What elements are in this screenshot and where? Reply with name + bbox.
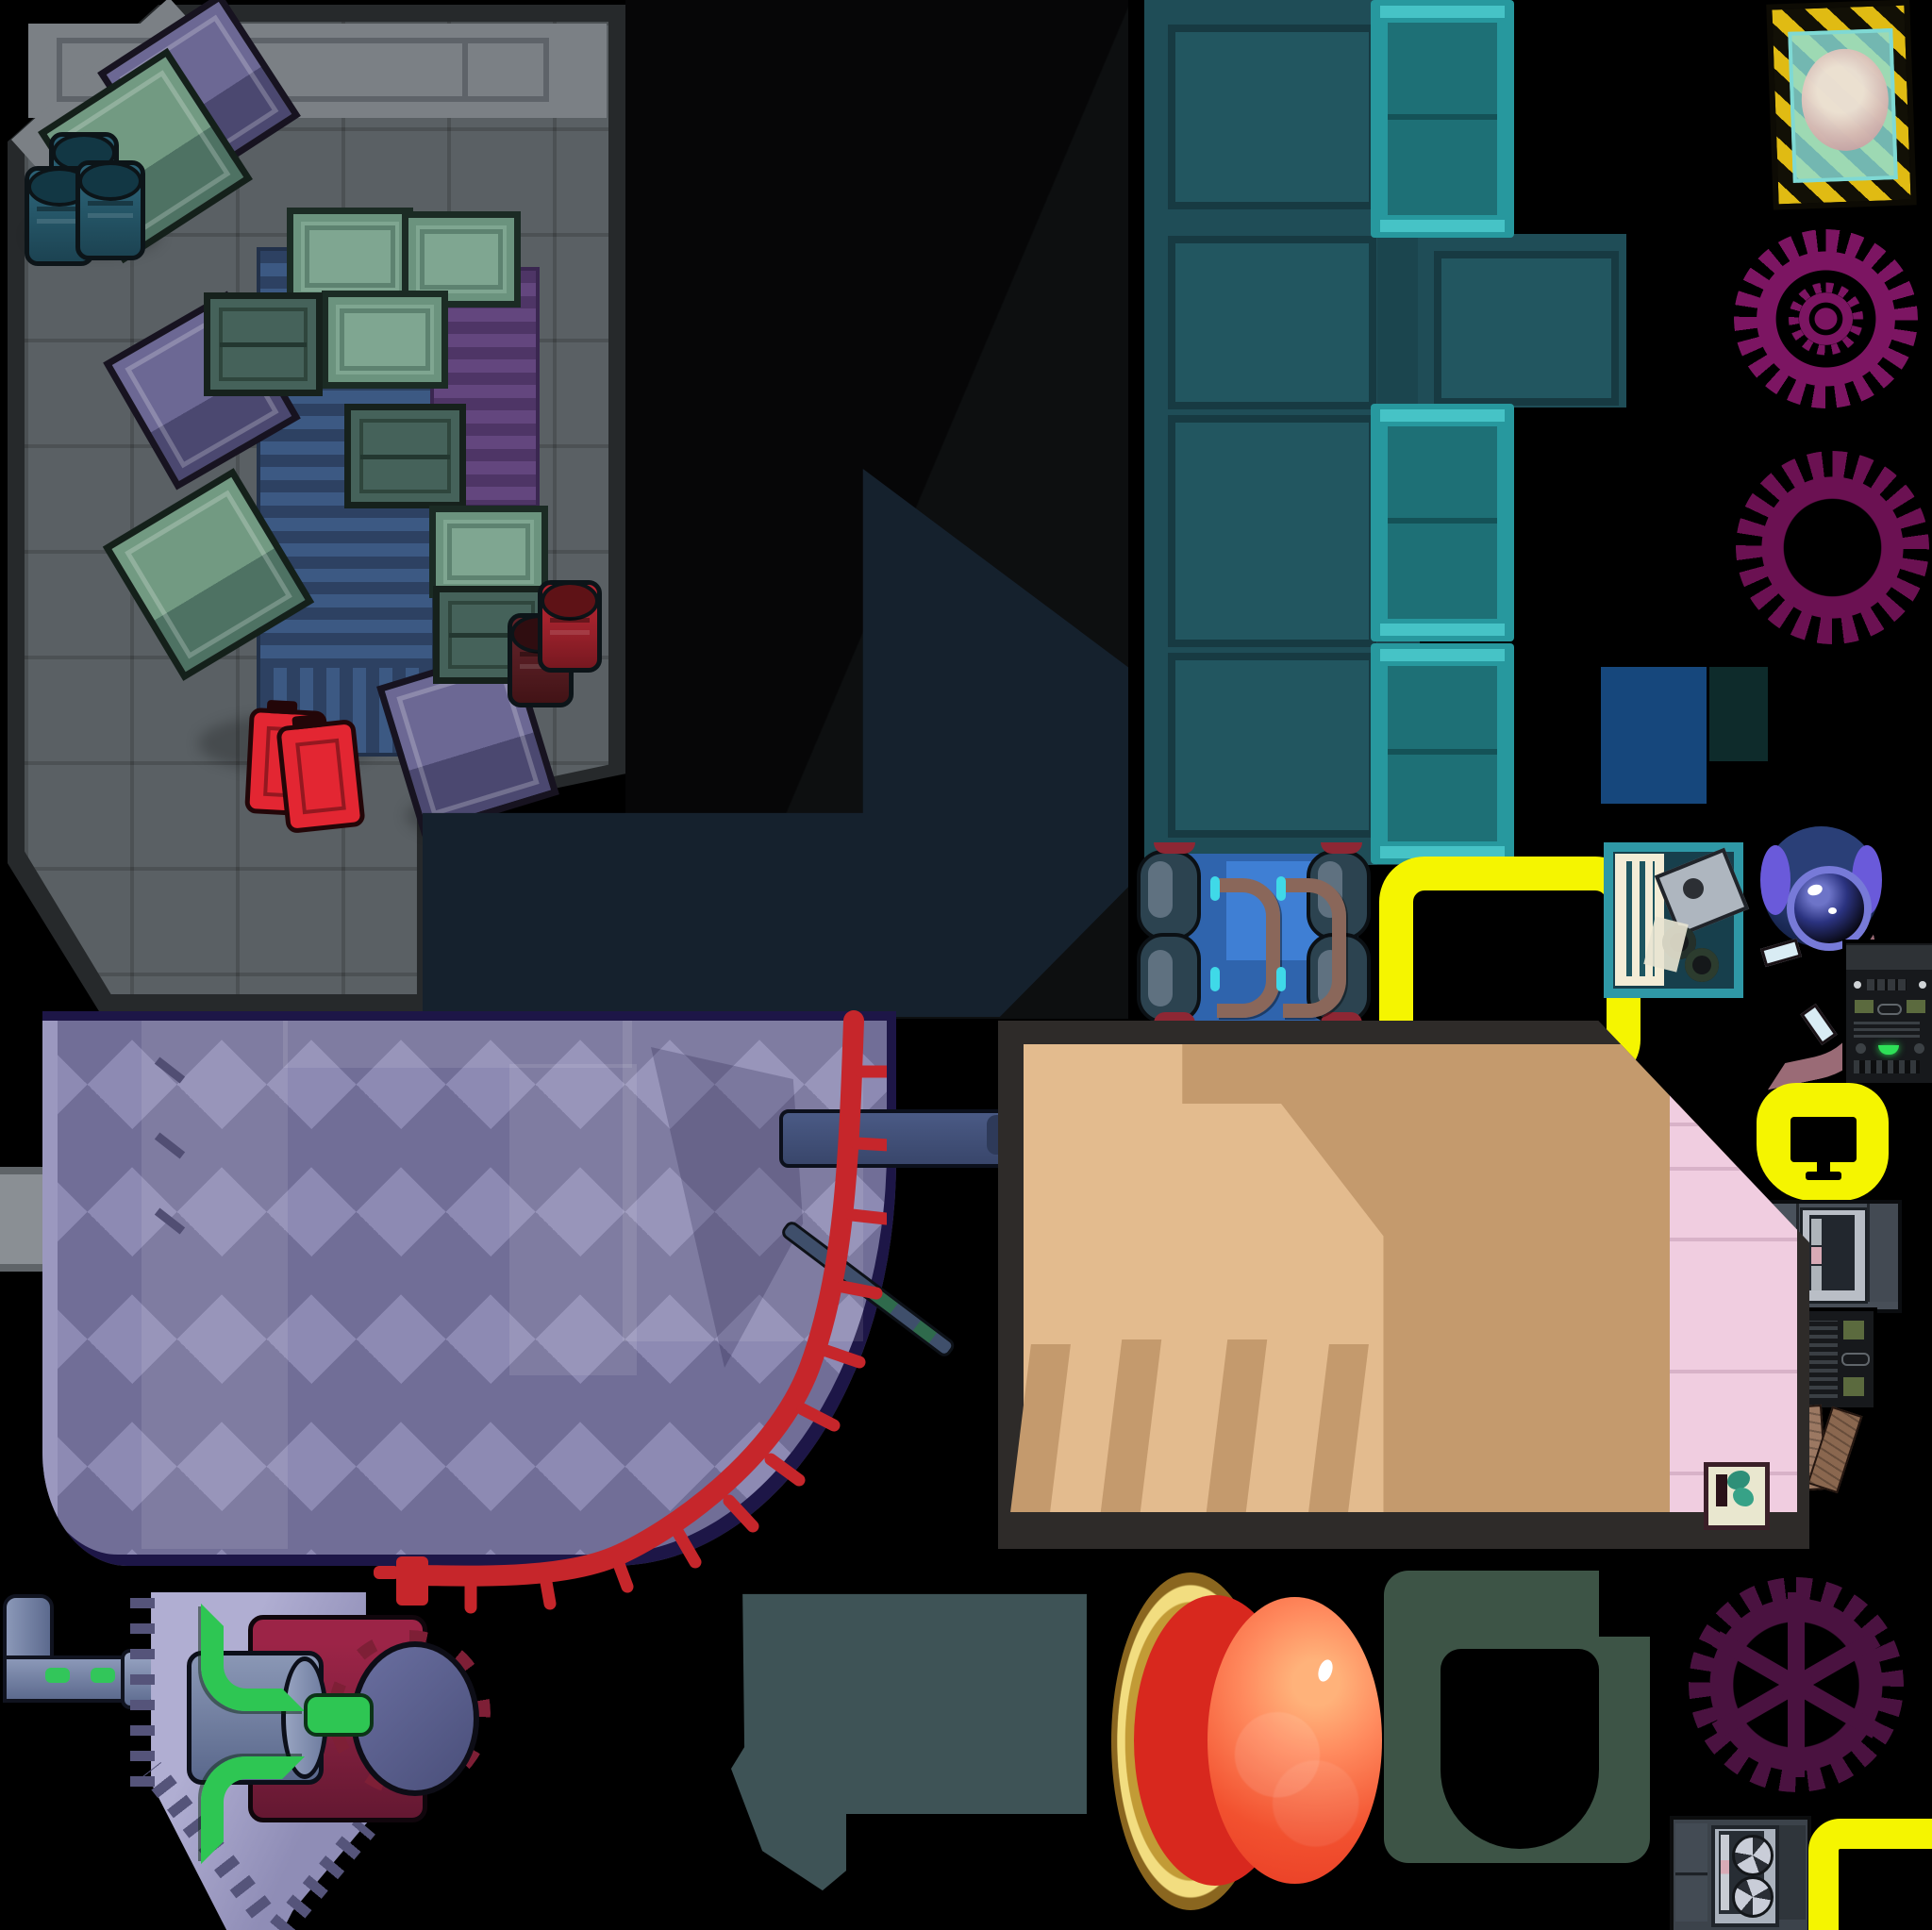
pipes-capsule xyxy=(1137,850,1201,940)
rack-green-cell xyxy=(1907,1000,1925,1013)
camera-orb xyxy=(1762,826,1880,947)
pipe-green-mark xyxy=(91,1668,115,1683)
door-cap xyxy=(1380,220,1505,232)
barrel-red xyxy=(538,580,602,673)
comms-desk xyxy=(1604,842,1743,998)
rack-top-band xyxy=(1846,945,1932,970)
gear-ring-core xyxy=(1736,451,1929,644)
hazard-window xyxy=(1766,0,1917,210)
jerry-can-red xyxy=(275,719,365,834)
pipe-green-mark xyxy=(45,1668,70,1683)
sliding-door xyxy=(1371,0,1514,238)
radio-dial xyxy=(1683,878,1704,899)
plant-picture xyxy=(1704,1462,1770,1530)
rack-vents xyxy=(1854,1021,1920,1038)
plant-pot-icon xyxy=(1716,1474,1727,1506)
door-cap xyxy=(1380,6,1505,18)
pipe-coupling-cyan xyxy=(1210,967,1220,991)
tan-room xyxy=(998,1021,1809,1549)
red-pipe-elbow xyxy=(396,1556,428,1606)
ws-strip-light xyxy=(1811,1219,1822,1245)
u-seat-notch xyxy=(1599,1571,1650,1637)
rack-dot xyxy=(1919,981,1926,989)
panel-seam xyxy=(1670,1370,1797,1373)
monitor-stand xyxy=(1817,1162,1830,1172)
gear-large-icon xyxy=(1734,229,1918,408)
wall-tab-gray xyxy=(0,1167,42,1272)
rack-led-green xyxy=(1878,1045,1899,1055)
door-cap xyxy=(1380,624,1505,636)
u-seat-green xyxy=(1384,1571,1650,1863)
teal-wall-panel xyxy=(1168,415,1376,647)
highlight-square-yellow xyxy=(1808,1819,1932,1930)
monitor-highlight xyxy=(1757,1083,1889,1201)
pipe-coupling-cyan xyxy=(1210,876,1220,901)
pipes-red-accent xyxy=(1321,842,1362,854)
floor-light-path xyxy=(142,1021,288,1549)
teal-wall-panel xyxy=(1168,653,1376,838)
hook-pipe xyxy=(1283,878,1346,1018)
ws-right-panel xyxy=(1867,1204,1898,1302)
lens-glint xyxy=(1828,907,1837,914)
crate-green-open xyxy=(429,506,548,598)
pipes-machine xyxy=(1137,842,1382,1031)
teal-wall-panel xyxy=(1168,236,1376,409)
rack-green-cell xyxy=(1855,1000,1874,1013)
tape-left-panel xyxy=(1675,1823,1707,1875)
rack-machine-1 xyxy=(1842,940,1932,1087)
door-cap xyxy=(1380,649,1505,661)
emergency-button xyxy=(1111,1572,1385,1912)
tape-strip xyxy=(1721,1835,1729,1910)
green-elbow xyxy=(201,1604,305,1711)
pipes-red-accent xyxy=(1154,842,1195,854)
rack-pill xyxy=(1841,1353,1870,1366)
red-pipe-rail xyxy=(358,1009,887,1632)
ws-strip-pink xyxy=(1811,1247,1822,1264)
rack-switches xyxy=(1867,979,1907,990)
monitor-base xyxy=(1806,1172,1841,1180)
sprite-atlas-canvas xyxy=(0,0,1932,1930)
hook-pipe xyxy=(1217,878,1280,1018)
gear-wheel-icon xyxy=(1689,1577,1904,1792)
gear-inner-teeth xyxy=(1734,229,1918,408)
darkteal-swatch xyxy=(1709,667,1768,761)
green-elbow xyxy=(201,1756,305,1864)
green-handle xyxy=(304,1693,374,1737)
sliding-door xyxy=(1371,643,1514,864)
room-left-wall xyxy=(42,1021,58,1566)
hopper-teeth xyxy=(130,1598,155,1787)
red-pipe-stub xyxy=(374,1566,400,1579)
barrel-teal xyxy=(75,160,145,260)
u-seat-hole xyxy=(1441,1649,1599,1849)
sliding-door xyxy=(1371,404,1514,641)
button-orange-dome xyxy=(1207,1597,1382,1884)
rack-knob xyxy=(1914,1043,1924,1054)
teal-wall-panel xyxy=(1168,25,1376,209)
rack-knob xyxy=(1856,1043,1866,1054)
tape-reel-icon xyxy=(1732,1876,1774,1918)
rack-slots xyxy=(1854,1060,1920,1073)
tape-left-panel xyxy=(1675,1876,1707,1922)
dome-hex-sheen xyxy=(1207,1597,1382,1884)
crate-green-closed xyxy=(204,292,323,396)
tape-reel-icon xyxy=(1732,1835,1774,1876)
rack-green-cell xyxy=(1843,1321,1864,1339)
ws-strip-light xyxy=(1811,1266,1822,1290)
gear-hub xyxy=(1779,1668,1813,1702)
monitor-icon xyxy=(1790,1117,1857,1162)
pipes-capsule xyxy=(1137,933,1201,1023)
rack-green-cell xyxy=(1843,1377,1864,1396)
door-cap xyxy=(1380,409,1505,422)
plant-leaf-icon xyxy=(1727,1471,1750,1489)
pipe-coupling-cyan xyxy=(1276,876,1286,901)
crate-green-closed xyxy=(344,404,466,508)
rack-dot xyxy=(1854,981,1861,989)
pipe-coupling-cyan xyxy=(1276,967,1286,991)
picture-pointer xyxy=(1770,1475,1787,1506)
teal-wall-panel xyxy=(1434,251,1619,406)
crate-green-open xyxy=(322,291,448,389)
panel-seam xyxy=(1670,1238,1797,1241)
navy-swatch xyxy=(1601,667,1707,804)
headphones-icon xyxy=(1685,948,1719,982)
rack-eq-lines xyxy=(1806,1321,1838,1398)
plant-leaf-icon xyxy=(1733,1488,1754,1506)
slate-arrow-shape xyxy=(731,1592,1090,1892)
gear-ring-icon xyxy=(1736,451,1929,644)
tape-machine xyxy=(1670,1816,1811,1930)
rack-pill xyxy=(1877,1004,1902,1015)
tape-right-panel xyxy=(1779,1825,1806,1920)
